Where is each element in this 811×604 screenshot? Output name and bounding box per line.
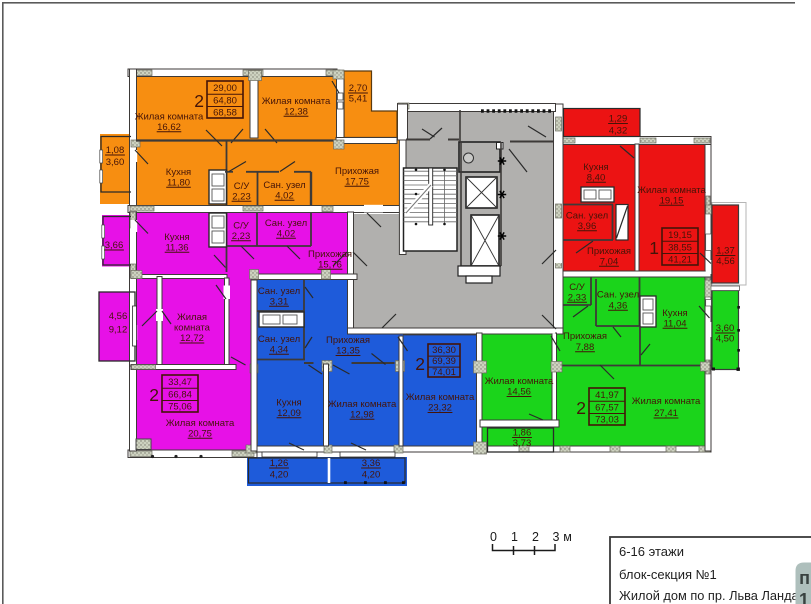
svg-text:41,21: 41,21 xyxy=(668,255,692,266)
svg-text:4,56: 4,56 xyxy=(109,311,128,322)
svg-text:Жилой дом по пр. Льва Ландау,: Жилой дом по пр. Льва Ландау, 186 xyxy=(619,588,811,603)
svg-text:7,04: 7,04 xyxy=(600,256,619,267)
svg-text:12,98: 12,98 xyxy=(350,409,374,420)
svg-text:19,15: 19,15 xyxy=(660,195,684,206)
svg-text:3,96: 3,96 xyxy=(578,221,597,232)
svg-text:2: 2 xyxy=(194,91,204,111)
svg-text:8,40: 8,40 xyxy=(587,172,606,183)
svg-text:1: 1 xyxy=(799,590,809,604)
svg-text:5,41: 5,41 xyxy=(349,94,368,105)
svg-text:4,20: 4,20 xyxy=(362,470,381,481)
svg-text:4,32: 4,32 xyxy=(609,126,628,137)
svg-text:4,50: 4,50 xyxy=(716,334,735,345)
svg-text:1,86: 1,86 xyxy=(513,428,532,439)
svg-text:1,08: 1,08 xyxy=(106,145,125,156)
svg-text:4,02: 4,02 xyxy=(277,228,296,239)
svg-text:68,58: 68,58 xyxy=(213,108,237,119)
svg-text:2,70: 2,70 xyxy=(349,83,368,94)
svg-text:29,00: 29,00 xyxy=(213,83,237,94)
svg-text:36,30: 36,30 xyxy=(432,345,456,356)
svg-text:4,02: 4,02 xyxy=(275,190,294,201)
svg-text:2,23: 2,23 xyxy=(232,191,251,202)
svg-text:2,33: 2,33 xyxy=(568,292,587,303)
svg-text:3,60: 3,60 xyxy=(716,323,735,334)
svg-text:11,36: 11,36 xyxy=(165,242,188,253)
svg-text:2: 2 xyxy=(415,354,425,374)
svg-text:4,34: 4,34 xyxy=(270,344,289,355)
svg-text:3,31: 3,31 xyxy=(270,296,289,307)
svg-text:3,73: 3,73 xyxy=(513,438,532,449)
svg-text:67,57: 67,57 xyxy=(595,402,619,413)
svg-text:33,47: 33,47 xyxy=(168,377,192,388)
svg-text:3,60: 3,60 xyxy=(106,157,125,168)
svg-text:блок-секция №1: блок-секция №1 xyxy=(619,567,717,582)
svg-text:15,76: 15,76 xyxy=(318,259,342,270)
svg-text:2,23: 2,23 xyxy=(232,231,251,242)
svg-text:1: 1 xyxy=(649,238,659,258)
svg-text:12,38: 12,38 xyxy=(284,106,308,117)
svg-text:Жилая комната: Жилая комната xyxy=(406,392,475,403)
svg-text:69,39: 69,39 xyxy=(432,356,456,367)
svg-text:64,80: 64,80 xyxy=(213,95,237,106)
svg-text:6-16 этажи: 6-16 этажи xyxy=(619,544,684,559)
svg-text:12,72: 12,72 xyxy=(180,333,204,344)
svg-text:20,75: 20,75 xyxy=(188,428,212,439)
svg-text:4,56: 4,56 xyxy=(716,256,735,267)
svg-text:3,66: 3,66 xyxy=(105,240,124,251)
svg-text:38,55: 38,55 xyxy=(668,242,692,253)
svg-text:4,20: 4,20 xyxy=(270,470,289,481)
svg-text:41,97: 41,97 xyxy=(595,390,619,401)
svg-text:19,15: 19,15 xyxy=(668,230,692,241)
svg-text:комната: комната xyxy=(174,323,211,334)
svg-text:12,09: 12,09 xyxy=(277,408,301,419)
svg-text:2: 2 xyxy=(576,398,586,418)
svg-text:3,36: 3,36 xyxy=(362,458,381,469)
svg-text:9,12: 9,12 xyxy=(109,325,128,336)
svg-text:11,04: 11,04 xyxy=(663,318,686,329)
svg-text:1,37: 1,37 xyxy=(716,246,735,257)
svg-text:Жилая: Жилая xyxy=(177,312,207,323)
svg-text:13,35: 13,35 xyxy=(336,346,360,357)
svg-text:74,01: 74,01 xyxy=(432,367,456,378)
svg-text:11,80: 11,80 xyxy=(167,177,190,188)
svg-text:73,03: 73,03 xyxy=(595,415,619,426)
svg-text:27,41: 27,41 xyxy=(654,408,678,419)
svg-text:1,26: 1,26 xyxy=(270,458,289,469)
svg-text:14,56: 14,56 xyxy=(507,387,531,398)
svg-text:п: п xyxy=(799,568,810,588)
svg-text:23,32: 23,32 xyxy=(428,403,452,414)
svg-text:1: 1 xyxy=(511,530,518,544)
svg-text:16,62: 16,62 xyxy=(157,122,181,133)
svg-text:Сан. узел: Сан. узел xyxy=(597,290,639,301)
svg-text:75,06: 75,06 xyxy=(168,402,192,413)
svg-text:2: 2 xyxy=(532,530,539,544)
svg-text:17,75: 17,75 xyxy=(345,176,369,187)
svg-text:2: 2 xyxy=(149,385,159,405)
svg-text:4,36: 4,36 xyxy=(609,300,628,311)
svg-text:Прихожая: Прихожая xyxy=(326,335,370,346)
svg-text:0: 0 xyxy=(490,530,497,544)
svg-text:1,29: 1,29 xyxy=(609,114,628,125)
svg-text:Прихожая: Прихожая xyxy=(563,331,607,342)
svg-text:Жилая комната: Жилая комната xyxy=(485,376,554,387)
svg-text:3: 3 xyxy=(553,530,560,544)
svg-text:Жилая комната: Жилая комната xyxy=(632,396,701,407)
svg-text:66,84: 66,84 xyxy=(168,389,192,400)
svg-text:7,88: 7,88 xyxy=(576,342,595,353)
svg-text:м: м xyxy=(563,530,572,544)
